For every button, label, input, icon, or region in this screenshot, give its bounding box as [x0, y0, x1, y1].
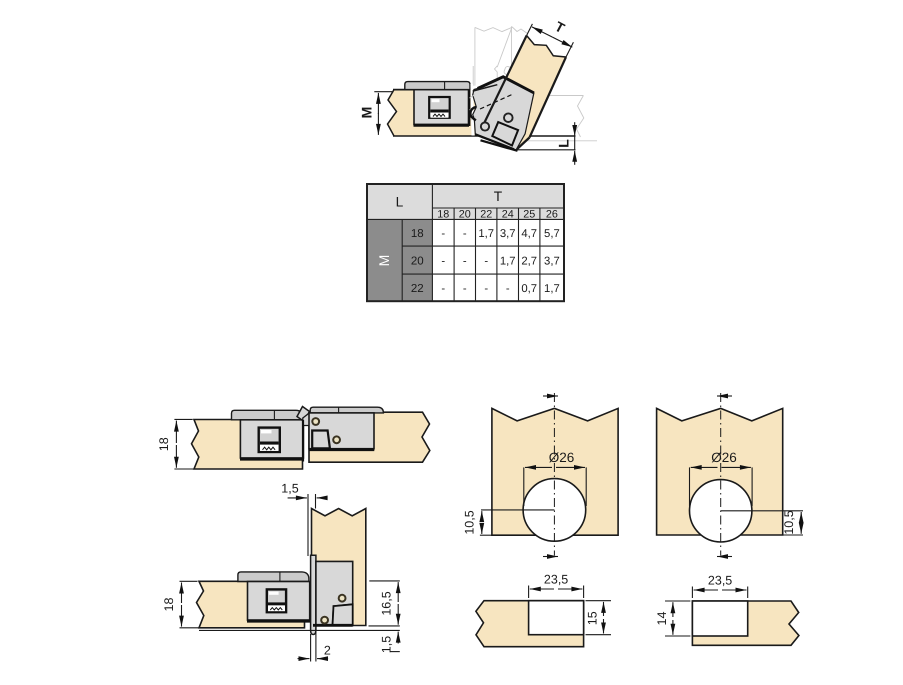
svg-text:-: -: [463, 283, 467, 295]
svg-text:Ø26: Ø26: [711, 450, 737, 465]
svg-text:14: 14: [655, 612, 669, 626]
svg-text:M: M: [359, 107, 375, 119]
svg-text:M: M: [376, 255, 392, 267]
svg-text:-: -: [463, 256, 467, 268]
svg-text:1,7: 1,7: [478, 228, 494, 240]
svg-text:T: T: [494, 189, 503, 204]
svg-text:18: 18: [157, 437, 171, 451]
svg-text:24: 24: [502, 209, 514, 221]
svg-text:20: 20: [411, 256, 424, 268]
svg-text:1,5: 1,5: [281, 482, 298, 496]
svg-text:25: 25: [523, 209, 535, 221]
svg-text:L: L: [396, 195, 404, 210]
svg-text:-: -: [484, 283, 488, 295]
svg-text:1,7: 1,7: [544, 283, 560, 295]
svg-text:2,7: 2,7: [521, 256, 537, 268]
svg-text:-: -: [441, 228, 445, 240]
svg-text:4,7: 4,7: [521, 228, 537, 240]
svg-text:23,5: 23,5: [708, 574, 732, 588]
svg-text:-: -: [484, 256, 488, 268]
svg-text:-: -: [441, 256, 445, 268]
svg-text:-: -: [441, 283, 445, 295]
svg-text:-: -: [506, 283, 510, 295]
svg-text:1,7: 1,7: [500, 256, 516, 268]
svg-text:10,5: 10,5: [463, 510, 477, 534]
svg-text:Ø26: Ø26: [549, 450, 575, 465]
svg-text:18: 18: [411, 228, 424, 240]
svg-text:22: 22: [480, 209, 492, 221]
svg-text:T: T: [552, 18, 567, 36]
svg-text:L: L: [556, 139, 572, 148]
svg-text:18: 18: [437, 209, 449, 221]
svg-text:1,5: 1,5: [380, 636, 394, 653]
svg-text:15: 15: [586, 611, 600, 625]
svg-text:20: 20: [459, 209, 471, 221]
svg-text:26: 26: [546, 209, 558, 221]
svg-text:3,7: 3,7: [544, 256, 560, 268]
svg-text:16,5: 16,5: [380, 591, 394, 615]
svg-text:18: 18: [162, 598, 176, 612]
svg-text:-: -: [463, 228, 467, 240]
svg-text:22: 22: [411, 283, 424, 295]
svg-text:10,5: 10,5: [782, 510, 796, 534]
svg-text:2: 2: [324, 644, 331, 658]
svg-text:3,7: 3,7: [500, 228, 516, 240]
svg-text:5,7: 5,7: [544, 228, 560, 240]
svg-text:0,7: 0,7: [521, 283, 537, 295]
svg-text:23,5: 23,5: [544, 573, 568, 587]
